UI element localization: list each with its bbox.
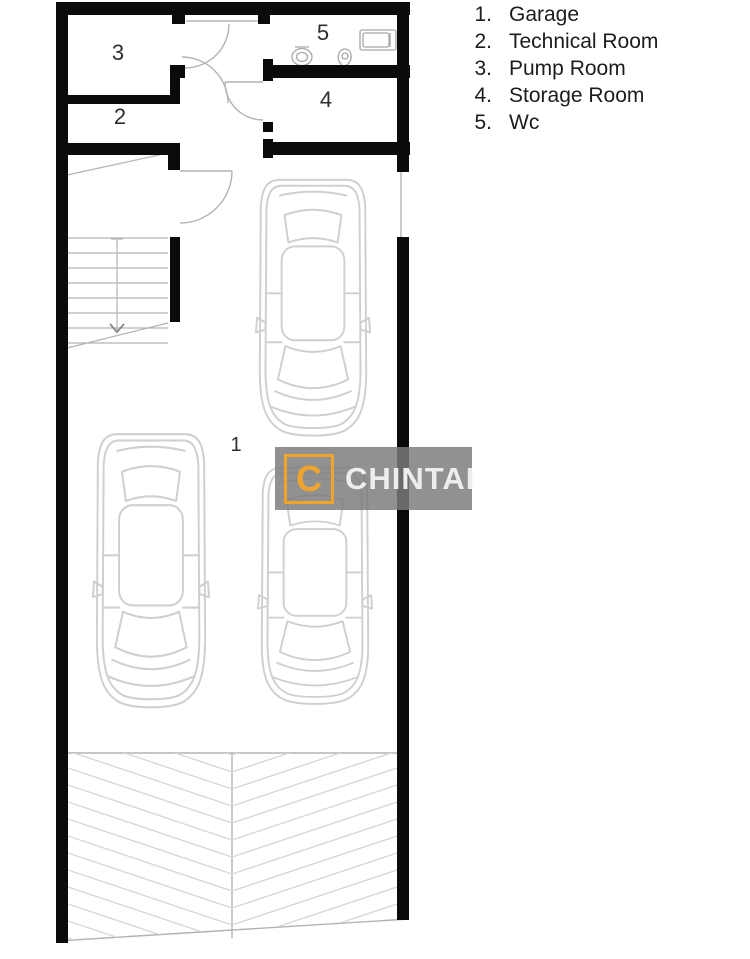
wall [56,2,410,15]
legend-item-label: Storage Room [509,82,644,109]
legend-item-label: Pump Room [509,55,626,82]
legend-item-label: Wc [509,109,539,136]
wall [263,139,273,158]
wall [258,13,270,24]
toilet-icon [292,49,312,66]
wall [56,143,168,155]
door-swing-arc [225,82,263,120]
toilet-icon [342,53,348,59]
hatch-line [68,938,397,959]
wall [56,95,180,104]
legend-item: 3.Pump Room [470,55,658,82]
legend-item-number: 3. [470,55,492,82]
room-number-label: 3 [112,40,124,65]
legend: 1.Garage2.Technical Room3.Pump Room4.Sto… [470,1,658,136]
room-number-label: 2 [114,104,126,129]
toilet-icon [297,53,308,62]
wall [263,122,273,132]
legend-item-number: 4. [470,82,492,109]
wall [263,65,410,78]
toilet-icon [338,49,351,66]
car-outline [93,434,209,707]
wall [263,142,410,155]
room-number-label: 5 [317,20,329,45]
legend-item-number: 5. [470,109,492,136]
car-outline [256,180,370,436]
legend-item: 1.Garage [470,1,658,28]
brand-name: CHINTAI [345,461,475,497]
room-number-label: 4 [320,87,332,112]
wall [172,13,185,24]
hatch-line [68,700,397,755]
wall [168,143,180,170]
stairs [67,153,168,348]
wall [263,59,273,81]
legend-item: 2.Technical Room [470,28,658,55]
room-number-label: 1 [230,434,241,456]
wc-fixtures [292,30,396,66]
construction-line [57,919,409,941]
legend-item: 5.Wc [470,109,658,136]
legend-item: 4.Storage Room [470,82,658,109]
door-swing-arc [185,24,229,68]
washbasin-icon [363,33,389,47]
legend-item-number: 2. [470,28,492,55]
legend-item-number: 1. [470,1,492,28]
page: 32541 1.Garage2.Technical Room3.Pump Roo… [0,0,750,959]
logo-letter: C [296,461,322,497]
wall [397,237,409,920]
wall [170,237,180,322]
legend-item-label: Technical Room [509,28,658,55]
watermark: C CHINTAI [275,447,472,510]
chintai-logo-icon: C [284,454,334,504]
stair-break-line [67,153,168,175]
door-swing-arc [180,171,232,223]
legend-item-label: Garage [509,1,579,28]
legend-list: 1.Garage2.Technical Room3.Pump Room4.Sto… [470,1,658,136]
